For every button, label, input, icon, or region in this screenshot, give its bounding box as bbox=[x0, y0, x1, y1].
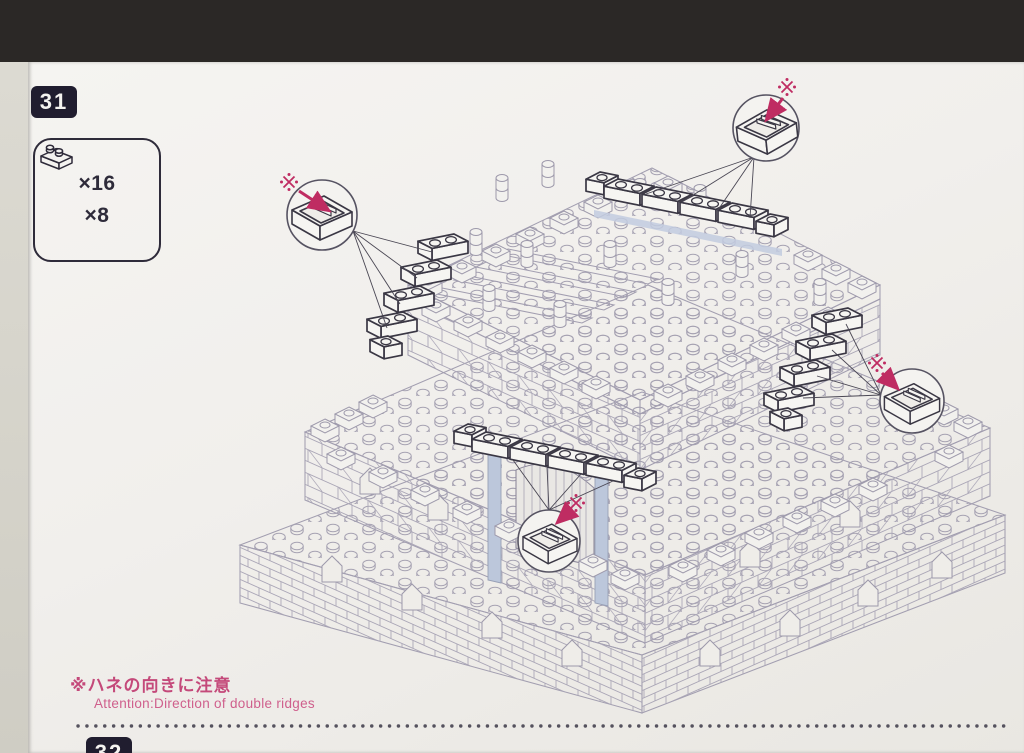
assembly-diagram bbox=[0, 0, 1024, 753]
step-number-badge: 31 bbox=[31, 86, 77, 118]
highlight-pillar bbox=[595, 475, 608, 606]
manual-page-photo: 31 ×16 bbox=[0, 0, 1024, 753]
parts-list-box: ×16 ×8 bbox=[33, 138, 161, 262]
part-row: ×16 bbox=[35, 172, 159, 196]
part-count: ×16 bbox=[78, 172, 115, 196]
reference-mark-icon bbox=[778, 78, 796, 96]
callout-circle-top-right bbox=[733, 78, 799, 161]
part-count: ×8 bbox=[85, 204, 110, 228]
attention-note-jp: ※ハネの向きに注意 bbox=[70, 671, 232, 696]
highlight-pillar bbox=[488, 452, 501, 583]
part-row: ×8 bbox=[35, 204, 159, 228]
part-icon-1x2-brick bbox=[35, 140, 77, 172]
callout-circle-left bbox=[280, 173, 357, 250]
attention-note-en: Attention:Direction of double ridges bbox=[94, 696, 315, 711]
reference-mark-icon bbox=[280, 173, 298, 191]
next-step-number-badge: 32 bbox=[86, 737, 132, 753]
